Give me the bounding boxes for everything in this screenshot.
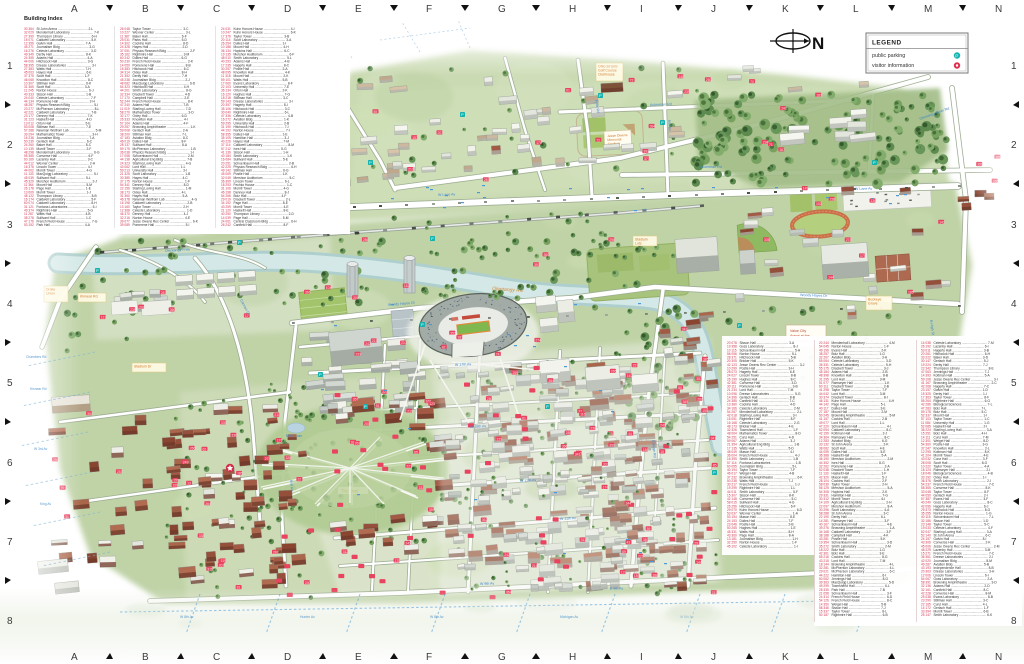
svg-text:341: 341: [575, 452, 581, 456]
svg-text:W Lane Av: W Lane Av: [438, 192, 456, 197]
svg-text:visitor information: visitor information: [872, 63, 914, 69]
svg-text:167: 167: [779, 148, 785, 152]
svg-text:Ackerman Rd: Ackerman Rd: [650, 102, 672, 107]
svg-text:K: K: [782, 652, 789, 663]
svg-text:Michigan Av: Michigan Av: [560, 615, 579, 619]
svg-text:249: 249: [183, 460, 189, 464]
svg-text:234: 234: [763, 140, 769, 144]
svg-text:P: P: [319, 373, 322, 377]
svg-text:K: K: [782, 4, 789, 15]
svg-text:74: 74: [496, 352, 500, 356]
svg-text:89: 89: [374, 110, 378, 114]
svg-text:W 11th Av: W 11th Av: [560, 516, 576, 521]
svg-text:240: 240: [305, 581, 311, 585]
svg-text:297: 297: [694, 541, 700, 545]
svg-text:72: 72: [630, 79, 634, 83]
svg-text:P: P: [738, 324, 741, 328]
svg-text:P: P: [369, 161, 372, 165]
svg-text:F: F: [426, 652, 432, 663]
svg-text:274: 274: [535, 339, 541, 343]
svg-text:210: 210: [274, 413, 280, 417]
svg-text:E: E: [355, 4, 362, 15]
svg-text:366: 366: [305, 290, 311, 294]
svg-text:Smith Laboratory .............: Smith Laboratory .......................…: [934, 613, 994, 617]
svg-text:Ackerman Rd: Ackerman Rd: [700, 165, 722, 169]
svg-text:351: 351: [450, 331, 456, 335]
svg-text:377: 377: [644, 157, 650, 161]
svg-text:336: 336: [764, 238, 770, 242]
svg-text:Stadium Dr: Stadium Dr: [134, 364, 152, 368]
svg-text:P: P: [873, 161, 876, 165]
svg-text:Canfield Hall ................: Canfield Hall ..........................…: [234, 223, 289, 227]
svg-text:219: 219: [407, 409, 413, 413]
svg-text:Building Index: Building Index: [24, 16, 63, 22]
svg-text:13: 13: [187, 482, 191, 486]
svg-text:312: 312: [343, 550, 349, 554]
svg-text:85: 85: [713, 464, 717, 468]
svg-text:215: 215: [372, 339, 378, 343]
svg-text:249: 249: [660, 424, 666, 428]
svg-text:181: 181: [457, 336, 463, 340]
svg-text:342: 342: [682, 327, 688, 331]
svg-text:273: 273: [265, 457, 271, 461]
svg-text:359: 359: [429, 508, 435, 512]
svg-text:360: 360: [170, 308, 176, 312]
svg-text:155: 155: [702, 409, 708, 413]
svg-text:H: H: [569, 652, 576, 663]
svg-text:136: 136: [871, 199, 877, 203]
svg-text:260: 260: [706, 78, 712, 82]
svg-text:238: 238: [830, 197, 836, 201]
svg-text:5: 5: [1011, 378, 1017, 389]
svg-text:311: 311: [207, 567, 213, 571]
svg-text:216: 216: [532, 564, 538, 568]
svg-text:P: P: [238, 241, 241, 245]
svg-text:266: 266: [190, 447, 196, 451]
svg-text:P: P: [546, 405, 549, 409]
svg-text:W 8th Av: W 8th Av: [180, 615, 194, 619]
svg-text:Hunter Av: Hunter Av: [300, 615, 315, 619]
svg-text:LEGEND: LEGEND: [872, 40, 902, 47]
svg-text:357: 357: [353, 397, 359, 401]
svg-text:P: P: [421, 323, 424, 327]
svg-text:159: 159: [173, 479, 179, 483]
svg-text:8: 8: [7, 616, 13, 627]
svg-text:1: 1: [1011, 61, 1017, 72]
svg-text:311: 311: [581, 538, 587, 542]
svg-text:155: 155: [634, 574, 640, 578]
svg-text:25 147: 25 147: [921, 613, 931, 617]
svg-text:Kinnear Rd: Kinnear Rd: [80, 294, 98, 298]
svg-text:185: 185: [237, 472, 243, 476]
svg-text:65: 65: [414, 450, 418, 454]
svg-text:J: J: [711, 4, 716, 15]
svg-text:P: P: [364, 405, 367, 409]
svg-text:116: 116: [580, 413, 586, 417]
svg-text:162: 162: [627, 374, 633, 378]
svg-text:W 8th Av: W 8th Av: [430, 615, 444, 619]
svg-text:43: 43: [627, 541, 631, 545]
svg-text:3: 3: [7, 220, 13, 231]
svg-text:F: F: [426, 4, 432, 15]
svg-text:P: P: [955, 54, 958, 59]
svg-text:365: 365: [683, 400, 689, 404]
svg-text:296: 296: [609, 238, 615, 242]
svg-text:Park Hall ....................: Park Hall ..............................…: [37, 223, 91, 227]
svg-text:328: 328: [286, 456, 292, 460]
svg-text:W Lane Av: W Lane Av: [855, 187, 873, 191]
svg-text:200: 200: [139, 305, 145, 309]
svg-text:22: 22: [297, 478, 301, 482]
svg-text:394: 394: [650, 125, 656, 129]
svg-text:Grove: Grove: [868, 301, 878, 305]
svg-text:Kinnear Rd: Kinnear Rd: [30, 387, 47, 391]
svg-text:Rightmire Hall ...............: Rightmire Hall .........................…: [832, 613, 888, 617]
svg-text:D: D: [284, 4, 291, 15]
svg-text:6: 6: [1011, 458, 1017, 469]
svg-text:144: 144: [696, 560, 702, 564]
svg-text:B: B: [142, 4, 149, 15]
svg-text:131: 131: [621, 571, 627, 575]
svg-text:Celeste Laboratory ...........: Celeste Laboratory .....................…: [740, 544, 798, 548]
svg-text:280: 280: [487, 397, 493, 401]
svg-text:M: M: [924, 4, 932, 15]
svg-text:D: D: [284, 652, 291, 663]
svg-text:3: 3: [1011, 220, 1017, 231]
svg-text:L: L: [853, 652, 859, 663]
svg-text:P: P: [461, 113, 464, 117]
svg-text:200: 200: [364, 422, 370, 426]
svg-text:229: 229: [497, 437, 503, 441]
svg-text:174: 174: [603, 486, 609, 490]
svg-text:P: P: [713, 471, 716, 475]
svg-text:149: 149: [803, 187, 809, 191]
svg-text:H: H: [569, 4, 576, 15]
svg-text:N: N: [812, 34, 824, 53]
svg-text:119: 119: [221, 559, 227, 563]
svg-text:178: 178: [395, 559, 401, 563]
svg-text:360: 360: [544, 253, 550, 257]
svg-text:45 102: 45 102: [727, 544, 737, 548]
svg-text:Value City: Value City: [790, 329, 806, 333]
svg-text:238: 238: [590, 427, 596, 431]
svg-text:333: 333: [419, 486, 425, 490]
svg-text:399: 399: [609, 443, 615, 447]
svg-text:6: 6: [7, 458, 13, 469]
svg-text:I: I: [640, 652, 643, 663]
svg-text:50 187: 50 187: [819, 613, 829, 617]
svg-text:69: 69: [622, 550, 626, 554]
svg-text:242: 242: [365, 342, 371, 346]
svg-text:392: 392: [643, 150, 649, 154]
svg-text:242: 242: [504, 553, 510, 557]
svg-text:70: 70: [750, 80, 754, 84]
svg-text:B: B: [142, 652, 149, 663]
svg-text:8: 8: [1011, 616, 1017, 627]
svg-text:362: 362: [482, 518, 488, 522]
svg-text:King Av: King Av: [40, 502, 51, 506]
svg-text:N: N: [995, 4, 1002, 15]
svg-text:7: 7: [1011, 537, 1017, 548]
svg-text:G: G: [498, 652, 506, 663]
svg-text:71: 71: [769, 143, 773, 147]
svg-text:338: 338: [199, 534, 205, 538]
svg-text:62: 62: [203, 447, 207, 451]
svg-text:public parking: public parking: [872, 53, 905, 59]
svg-text:A: A: [71, 652, 78, 663]
svg-text:285: 285: [566, 431, 572, 435]
svg-text:228: 228: [173, 484, 179, 488]
svg-text:123: 123: [429, 402, 435, 406]
svg-text:Pomerene Hall ................: Pomerene Hall ..........................…: [133, 223, 190, 227]
svg-text:264: 264: [205, 502, 211, 506]
svg-text:350: 350: [87, 412, 93, 416]
svg-text:183: 183: [816, 93, 822, 97]
svg-text:L: L: [853, 4, 859, 15]
svg-text:80: 80: [678, 386, 682, 390]
svg-text:61: 61: [522, 416, 526, 420]
svg-text:5: 5: [7, 378, 13, 389]
svg-text:91: 91: [376, 404, 380, 408]
svg-text:144: 144: [828, 276, 834, 280]
svg-text:333: 333: [603, 462, 609, 466]
svg-text:239: 239: [684, 90, 690, 94]
svg-text:59: 59: [647, 527, 651, 531]
svg-text:344: 344: [626, 501, 632, 505]
svg-text:178: 178: [860, 254, 866, 258]
svg-text:366: 366: [562, 445, 568, 449]
svg-text:J: J: [711, 652, 716, 663]
svg-text:Lots: Lots: [635, 241, 642, 245]
svg-text:142: 142: [939, 220, 945, 224]
svg-text:176: 176: [536, 141, 542, 145]
svg-text:237: 237: [633, 364, 639, 368]
svg-text:2: 2: [7, 140, 13, 151]
svg-text:262: 262: [355, 442, 361, 446]
svg-text:221: 221: [638, 554, 644, 558]
svg-text:15: 15: [660, 450, 664, 454]
svg-text:182: 182: [404, 284, 410, 288]
svg-text:61: 61: [566, 89, 570, 93]
svg-text:239: 239: [130, 308, 136, 312]
svg-text:C: C: [213, 4, 220, 15]
svg-text:213: 213: [401, 341, 407, 345]
svg-text:384: 384: [548, 379, 554, 383]
svg-text:259: 259: [513, 371, 519, 375]
svg-text:A: A: [71, 4, 78, 15]
svg-text:265: 265: [611, 370, 617, 374]
svg-text:104: 104: [326, 286, 332, 290]
svg-text:393: 393: [534, 263, 540, 267]
svg-text:207: 207: [219, 563, 225, 567]
svg-text:385: 385: [703, 357, 709, 361]
svg-text:287: 287: [161, 291, 167, 295]
svg-text:253: 253: [117, 470, 123, 474]
svg-text:P: P: [96, 269, 99, 273]
svg-text:M: M: [924, 652, 932, 663]
svg-text:7: 7: [7, 537, 13, 548]
svg-text:W 3rd Av: W 3rd Av: [34, 447, 48, 451]
svg-text:4: 4: [7, 299, 13, 310]
svg-text:113: 113: [101, 316, 107, 320]
svg-text:176: 176: [277, 439, 283, 443]
svg-text:207: 207: [438, 131, 444, 135]
svg-text:398: 398: [653, 573, 659, 577]
svg-text:383: 383: [643, 538, 649, 542]
svg-text:I: I: [640, 4, 643, 15]
svg-text:C: C: [213, 652, 220, 663]
svg-text:157: 157: [412, 136, 418, 140]
svg-text:Chambers Rd: Chambers Rd: [26, 355, 47, 359]
svg-text:286: 286: [363, 238, 369, 242]
svg-text:P: P: [599, 94, 602, 98]
svg-text:1: 1: [7, 61, 13, 72]
svg-text:39 089: 39 089: [120, 223, 130, 227]
svg-text:383: 383: [696, 377, 702, 381]
svg-text:142: 142: [781, 107, 787, 111]
svg-text:P: P: [661, 121, 664, 125]
svg-text:185: 185: [908, 290, 914, 294]
svg-text:102: 102: [816, 202, 822, 206]
svg-text:336: 336: [231, 434, 237, 438]
svg-text:47: 47: [442, 345, 446, 349]
svg-text:341: 341: [711, 437, 717, 441]
svg-text:287: 287: [484, 178, 490, 182]
svg-text:2: 2: [1011, 140, 1017, 151]
svg-text:G: G: [498, 4, 506, 15]
svg-text:E: E: [355, 652, 362, 663]
svg-text:188: 188: [643, 448, 649, 452]
svg-text:260: 260: [697, 397, 703, 401]
svg-text:P: P: [431, 237, 434, 241]
svg-text:213: 213: [408, 168, 414, 172]
svg-text:53 152: 53 152: [24, 223, 34, 227]
svg-text:274: 274: [846, 238, 852, 242]
svg-text:242: 242: [405, 542, 411, 546]
svg-text:282: 282: [273, 550, 279, 554]
svg-text:72: 72: [596, 138, 600, 142]
svg-text:233: 233: [356, 353, 362, 357]
svg-text:221: 221: [406, 465, 412, 469]
svg-text:W 9th Av: W 9th Av: [480, 581, 495, 586]
svg-text:44: 44: [628, 432, 632, 436]
svg-text:335: 335: [221, 421, 227, 425]
svg-text:N: N: [995, 652, 1002, 663]
svg-text:206: 206: [353, 296, 359, 300]
svg-text:4: 4: [1011, 299, 1017, 310]
svg-text:Mirror Lake: Mirror Lake: [286, 434, 302, 438]
svg-text:26 242: 26 242: [221, 223, 231, 227]
